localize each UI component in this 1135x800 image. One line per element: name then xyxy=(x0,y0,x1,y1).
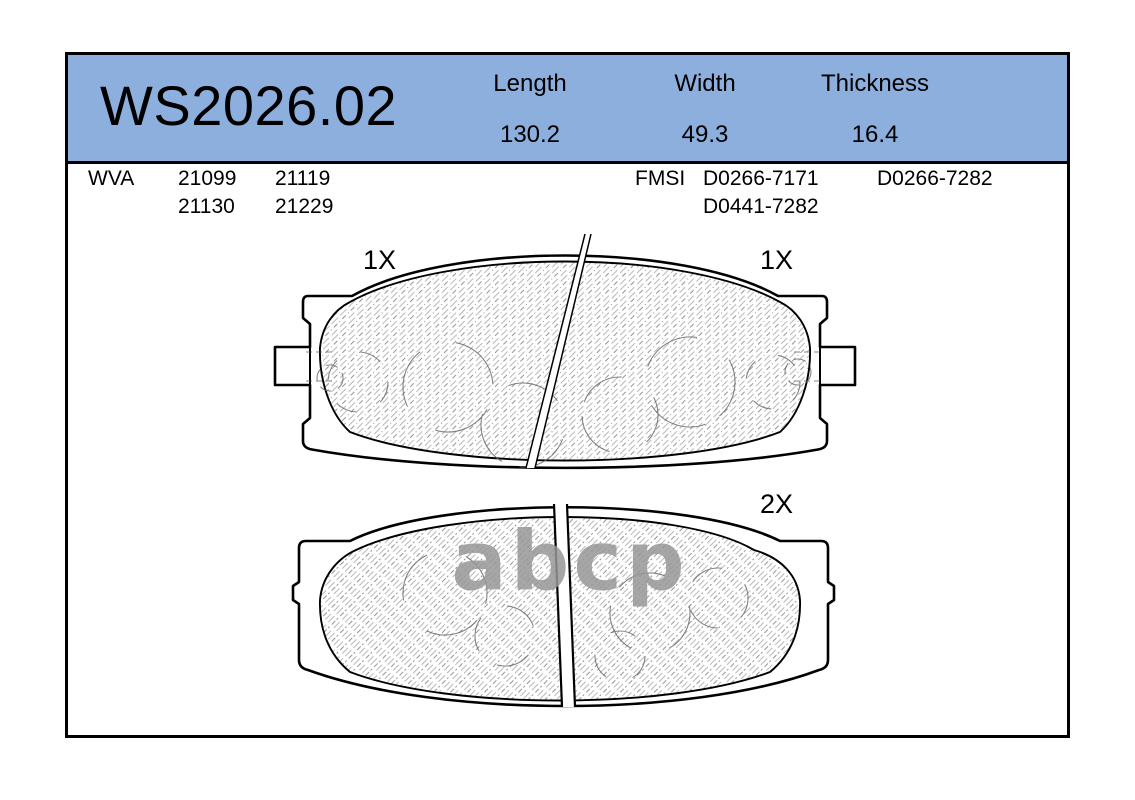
wva-number: 21130 xyxy=(178,195,235,218)
part-number: WS2026.02 xyxy=(100,77,397,135)
fmsi-label: FMSI xyxy=(635,167,685,190)
watermark: abcp xyxy=(451,515,688,610)
width-value: 49.3 xyxy=(674,122,735,148)
friction-material-hatched xyxy=(320,262,810,461)
wva-number: 21119 xyxy=(275,167,330,190)
brake-pad-drawing-top xyxy=(268,232,860,477)
thickness-value: 16.4 xyxy=(821,122,929,148)
part-card: WS2026.02 Length 130.2 Width 49.3 Thickn… xyxy=(65,52,1070,738)
dimension-column-thickness: Thickness 16.4 xyxy=(821,71,929,148)
part-header: WS2026.02 Length 130.2 Width 49.3 Thickn… xyxy=(68,55,1067,164)
cross-references: WVA 21099 21119 21130 21229 FMSI D0266-7… xyxy=(68,164,1067,230)
wva-number: 21099 xyxy=(178,167,236,190)
thickness-label: Thickness xyxy=(821,71,929,97)
wva-label: WVA xyxy=(88,167,134,190)
dimension-column-width: Width 49.3 xyxy=(674,71,735,148)
wva-number: 21229 xyxy=(275,195,333,218)
fmsi-number: D0441-7282 xyxy=(703,195,819,218)
length-label: Length xyxy=(493,71,566,97)
fmsi-number: D0266-7282 xyxy=(877,167,993,190)
width-label: Width xyxy=(674,71,735,97)
dimension-column-length: Length 130.2 xyxy=(493,71,566,148)
fmsi-number: D0266-7171 xyxy=(703,167,819,190)
length-value: 130.2 xyxy=(493,122,566,148)
